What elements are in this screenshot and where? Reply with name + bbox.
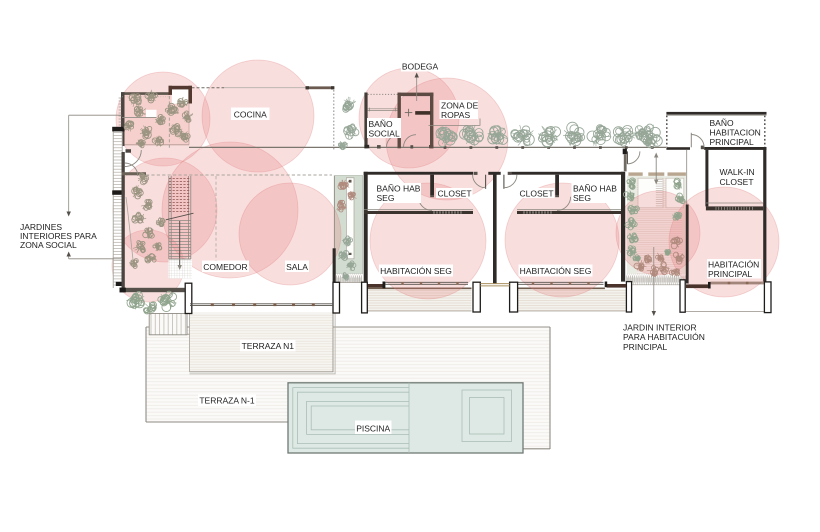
svg-text:ZONA SOCIAL: ZONA SOCIAL <box>20 240 77 250</box>
svg-text:WALK-IN: WALK-IN <box>720 167 755 177</box>
svg-text:COMEDOR: COMEDOR <box>203 262 247 272</box>
svg-text:BODEGA: BODEGA <box>402 62 439 72</box>
svg-text:SEG: SEG <box>377 193 395 203</box>
svg-text:BAÑO: BAÑO <box>710 118 734 128</box>
svg-text:COCINA: COCINA <box>234 109 267 119</box>
svg-text:BAÑO HAB: BAÑO HAB <box>377 183 421 193</box>
svg-text:JARDIN INTERIOR: JARDIN INTERIOR <box>623 323 697 333</box>
svg-text:CLOSET: CLOSET <box>720 177 754 187</box>
svg-text:CLOSET: CLOSET <box>438 188 472 198</box>
svg-text:PRINCIPAL: PRINCIPAL <box>623 342 668 352</box>
svg-text:TERRAZA N-1: TERRAZA N-1 <box>199 395 255 405</box>
svg-text:PARA HABITACUIÓN: PARA HABITACUIÓN <box>623 332 705 342</box>
svg-text:BAÑO: BAÑO <box>369 119 393 129</box>
svg-text:HABITACIÓN SEG: HABITACIÓN SEG <box>380 266 452 276</box>
svg-text:BAÑO HAB: BAÑO HAB <box>573 183 617 193</box>
svg-text:PRINCIPAL: PRINCIPAL <box>710 137 755 147</box>
svg-text:ZONA DE: ZONA DE <box>441 101 479 111</box>
svg-text:PRINCIPAL: PRINCIPAL <box>708 269 753 279</box>
svg-text:PISCINA: PISCINA <box>356 424 390 434</box>
svg-text:CLOSET: CLOSET <box>520 188 554 198</box>
svg-text:SEG: SEG <box>573 193 591 203</box>
svg-text:HABITACIÓN SEG: HABITACIÓN SEG <box>520 266 592 276</box>
svg-text:ROPAS: ROPAS <box>441 110 470 120</box>
svg-text:HABITACIÓN: HABITACIÓN <box>708 260 759 270</box>
svg-text:SALA: SALA <box>286 262 308 272</box>
svg-text:HABITACION: HABITACION <box>710 128 761 138</box>
svg-text:SOCIAL: SOCIAL <box>369 128 400 138</box>
svg-text:TERRAZA N1: TERRAZA N1 <box>242 341 295 351</box>
